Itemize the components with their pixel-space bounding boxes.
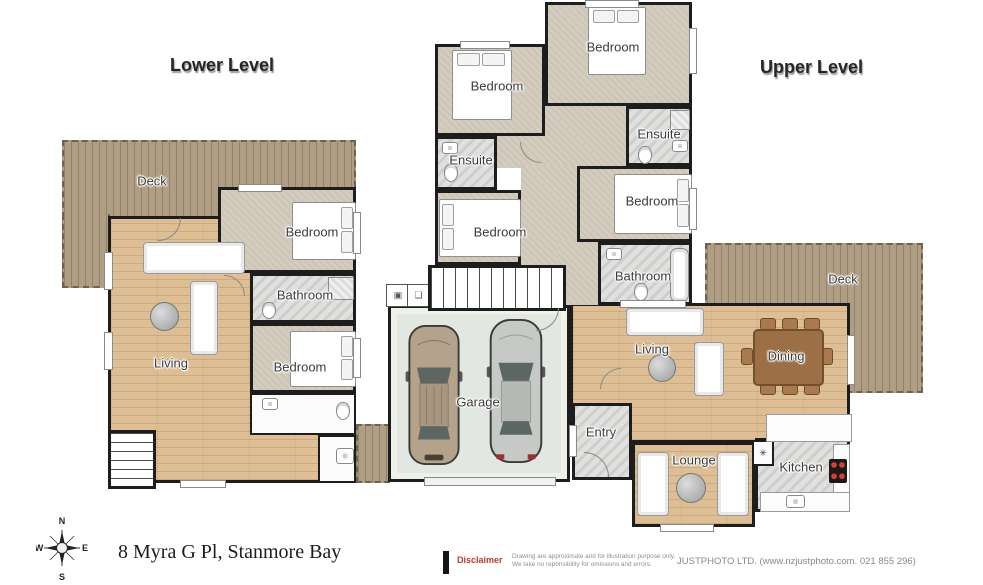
compass-north-label: N [59, 516, 66, 526]
kitchen-counter-bottom [760, 492, 850, 512]
room-label-ensuite: Ensuite [449, 153, 492, 168]
room-label-bedroom: Bedroom [587, 40, 640, 55]
room-label-dining: Dining [768, 349, 805, 364]
disclaimer-line-2: We take no reponsibility for omissions a… [512, 561, 675, 569]
sofa-icon [190, 281, 218, 355]
car-sedan-icon [486, 318, 546, 464]
room-label-bedroom: Bedroom [286, 225, 339, 240]
disclaimer-line-1: Drawing are approximate and for illustra… [512, 553, 675, 561]
room-label-garage: Garage [456, 395, 499, 410]
toilet-icon [336, 402, 350, 420]
room-label-living: Living [635, 342, 669, 357]
dining-chair-icon [741, 348, 753, 365]
room-label-living-lower: Living [154, 356, 188, 371]
basin-icon [672, 140, 688, 152]
compass-east-label: E [82, 543, 88, 553]
floorplan-canvas: Lower Level Upper Level ▣ ❑ ✳ [0, 0, 983, 585]
room-label-bedroom: Bedroom [626, 194, 679, 209]
sofa-icon [626, 308, 704, 336]
laundry-sink-icon [336, 448, 354, 464]
bathtub-icon [670, 248, 689, 302]
window [620, 300, 686, 308]
window [569, 425, 577, 457]
stove-icon [829, 459, 847, 483]
upper-level-title: Upper Level [760, 57, 863, 78]
kitchen-sink-icon [786, 495, 805, 508]
lower-deck-strip [62, 214, 110, 288]
compass-south-label: S [59, 572, 65, 582]
room-label-deck-lower: Deck [137, 174, 167, 189]
room-label-bathroom: Bathroom [277, 288, 333, 303]
lower-level-title: Lower Level [170, 55, 274, 76]
compass-west-label: W [36, 543, 44, 553]
toilet-icon [634, 283, 648, 301]
window [689, 28, 697, 74]
photographer-credit: JUSTPHOTO LTD. (www.nzjustphoto.com. 021… [677, 556, 916, 567]
lower-stairs [108, 430, 156, 489]
window [585, 0, 639, 8]
heatpump-cupboard: ✳ [752, 440, 774, 466]
room-label-bedroom: Bedroom [274, 360, 327, 375]
room-label-lounge: Lounge [672, 453, 715, 468]
coffee-table-icon [150, 302, 179, 331]
window [660, 524, 714, 532]
room-label-bedroom: Bedroom [471, 79, 524, 94]
disclaimer-text: Drawing are approximate and for illustra… [512, 553, 675, 569]
window [353, 212, 361, 254]
window [353, 338, 361, 378]
garage-door [424, 477, 556, 486]
window [689, 188, 697, 230]
coffee-table-icon [648, 354, 676, 382]
room-label-bathroom: Bathroom [615, 269, 671, 284]
window [847, 335, 855, 385]
coffee-table-icon [676, 473, 706, 503]
disclaimer-bar [443, 551, 449, 574]
property-address: 8 Myra G Pl, Stanmore Bay [118, 541, 341, 564]
basin-icon [262, 398, 278, 410]
toilet-icon [262, 302, 276, 319]
window [180, 480, 226, 488]
sofa-icon [143, 242, 245, 274]
window [104, 252, 113, 290]
window [238, 184, 282, 192]
side-step-deck [356, 424, 390, 483]
sofa-icon [637, 452, 669, 516]
star-symbol: ✳ [759, 448, 767, 459]
upper-stairs [428, 265, 566, 311]
room-label-deck-upper: Deck [828, 272, 858, 287]
basin-icon [606, 248, 622, 260]
car-suv-icon [405, 324, 463, 466]
room-label-entry: Entry [586, 425, 616, 440]
sofa-icon [717, 452, 749, 516]
disclaimer-label: Disclaimer [457, 555, 503, 565]
laundry-tub-icon: ❑ [407, 284, 430, 307]
room-label-bedroom: Bedroom [474, 225, 527, 240]
armchair-icon [694, 342, 724, 396]
room-label-kitchen: Kitchen [779, 460, 822, 475]
window [460, 41, 510, 49]
window [104, 332, 113, 370]
toilet-icon [638, 146, 652, 164]
compass-rose-icon: N S W E [36, 514, 88, 582]
kitchen-bench [766, 414, 852, 442]
room-label-ensuite: Ensuite [637, 127, 680, 142]
